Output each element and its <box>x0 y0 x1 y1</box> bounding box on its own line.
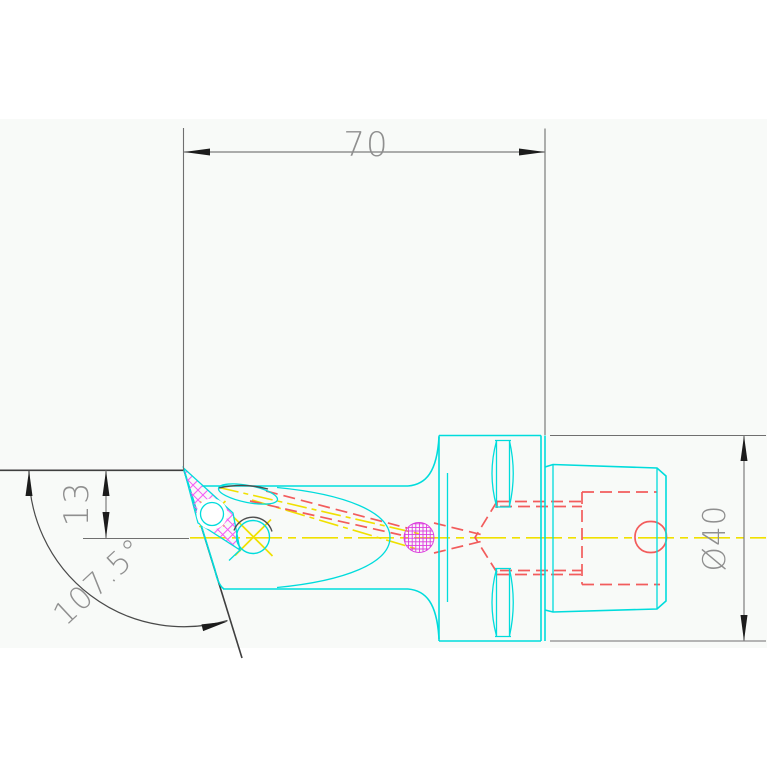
cad-canvas: 70 13 107.5° Ø40 <box>0 0 767 767</box>
dim-text-diameter: Ø40 <box>697 505 733 572</box>
clamp-screw-section <box>404 523 434 553</box>
dim-text-70: 70 <box>343 125 388 165</box>
insert-screw-hole <box>201 503 224 526</box>
dim-text-13: 13 <box>57 481 97 526</box>
cad-viewport: 70 13 107.5° Ø40 <box>0 0 767 767</box>
